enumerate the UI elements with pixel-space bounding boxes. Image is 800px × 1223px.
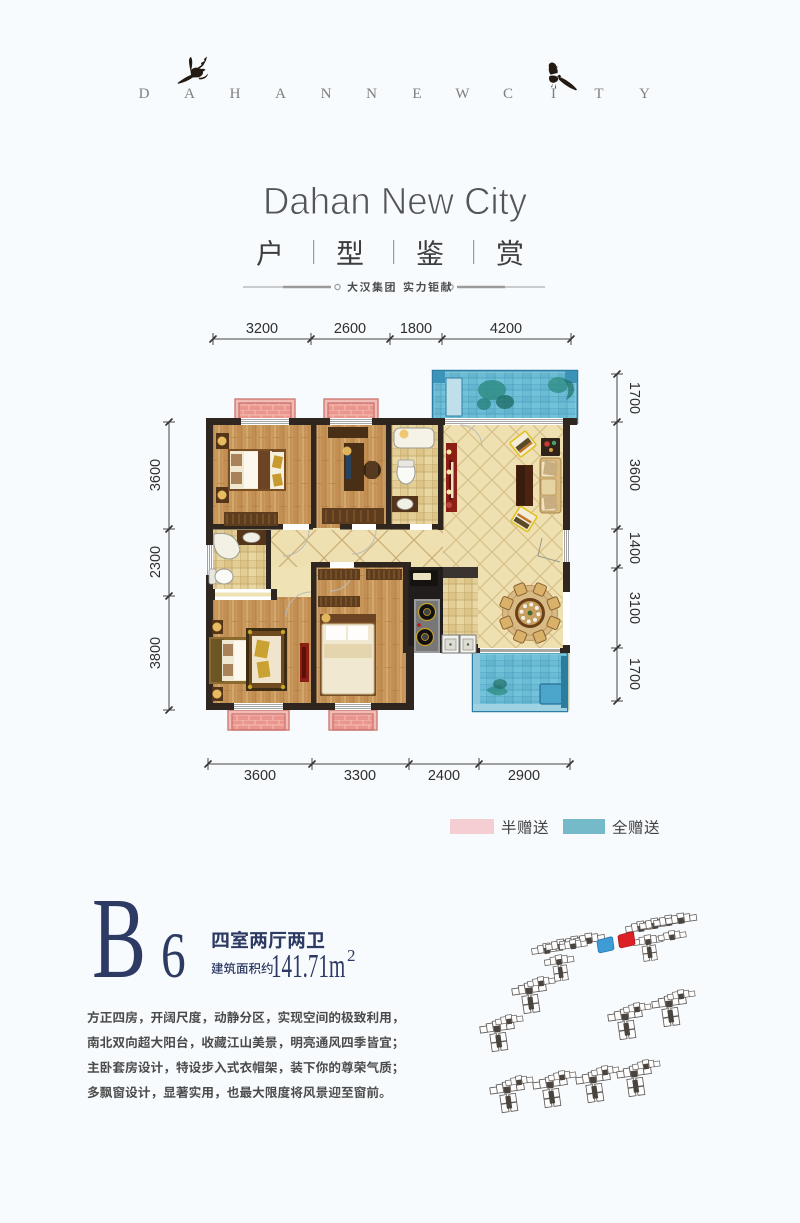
svg-text:2400: 2400: [428, 768, 460, 784]
svg-text:D: D: [139, 86, 150, 102]
svg-text:1700: 1700: [626, 382, 642, 414]
svg-text:6: 6: [161, 921, 186, 992]
svg-text:Y: Y: [639, 86, 650, 102]
svg-text:3100: 3100: [626, 592, 642, 624]
svg-text:3600: 3600: [244, 768, 276, 784]
svg-text:2: 2: [347, 946, 356, 965]
svg-text:4200: 4200: [490, 321, 522, 337]
svg-text:E: E: [412, 86, 421, 102]
svg-text:N: N: [321, 86, 332, 102]
svg-text:1400: 1400: [626, 532, 642, 564]
svg-text:Dahan New City: Dahan New City: [263, 181, 527, 223]
svg-text:3800: 3800: [148, 637, 164, 669]
svg-text:T: T: [594, 86, 603, 102]
svg-text:3600: 3600: [626, 459, 642, 491]
svg-text:2300: 2300: [148, 546, 164, 578]
svg-text:C: C: [503, 86, 513, 102]
svg-text:1700: 1700: [626, 658, 642, 690]
svg-text:W: W: [455, 86, 470, 102]
svg-text:1800: 1800: [400, 321, 432, 337]
svg-text:B: B: [92, 874, 146, 1003]
svg-text:3300: 3300: [344, 768, 376, 784]
svg-text:H: H: [230, 86, 241, 102]
svg-text:A: A: [184, 86, 195, 102]
svg-text:2600: 2600: [334, 321, 366, 337]
svg-text:3600: 3600: [148, 459, 164, 491]
svg-text:I: I: [551, 86, 556, 102]
svg-text:2900: 2900: [508, 768, 540, 784]
svg-text:141.71m: 141.71m: [271, 948, 345, 985]
svg-text:N: N: [366, 86, 377, 102]
svg-text:A: A: [275, 86, 286, 102]
svg-text:3200: 3200: [246, 321, 278, 337]
